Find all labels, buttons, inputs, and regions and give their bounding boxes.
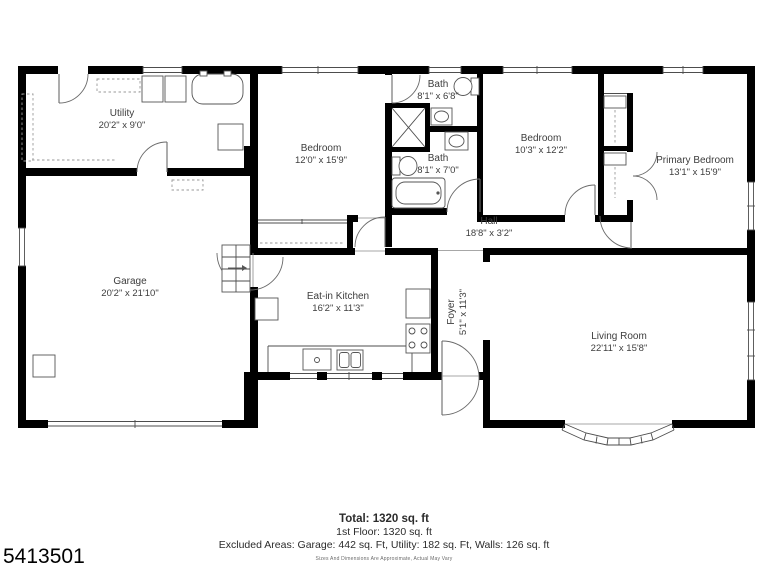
floorplan-drawing <box>0 0 768 576</box>
toilet-top <box>454 78 479 96</box>
dryer <box>165 76 186 102</box>
primary-closet-doors <box>633 152 657 200</box>
freezer <box>218 124 243 150</box>
refrigerator <box>406 289 430 318</box>
front-door <box>442 341 479 415</box>
bow-window <box>562 424 674 445</box>
kitchen-fixtures <box>255 289 430 372</box>
closet-top <box>604 94 627 145</box>
kitchen-sink <box>337 350 363 370</box>
garage-window <box>18 228 26 266</box>
water-heater <box>33 355 55 377</box>
bath-top-door <box>392 75 420 103</box>
listing-photo-id: 5413501 <box>3 545 85 569</box>
laundry-tub <box>192 71 243 104</box>
vanity-bottom <box>445 132 468 150</box>
utility-garage-door <box>137 142 167 172</box>
garage-door <box>48 420 222 428</box>
bathtub <box>392 178 445 208</box>
bedroom2-door <box>565 185 595 215</box>
bedroom-window <box>282 66 358 74</box>
vanity-top <box>431 108 452 125</box>
floorplan-page: Utility20'2" x 9'0"Bedroom12'0" x 15'9"B… <box>0 0 768 576</box>
stove <box>406 324 430 353</box>
bedroom-closet <box>258 219 347 243</box>
total-area: Total: 1320 sq. ft <box>0 513 768 526</box>
living-side-window <box>747 302 755 380</box>
pantry <box>255 298 278 320</box>
excluded-areas: Excluded Areas: Garage: 442 sq. Ft, Util… <box>0 539 768 552</box>
first-floor-area: 1st Floor: 1320 sq. ft <box>0 526 768 539</box>
hall-kitchen-door <box>355 217 385 247</box>
closet-bottom <box>604 153 626 198</box>
bath-window <box>429 66 461 74</box>
primary-window <box>663 66 703 74</box>
kitchen-windows <box>290 372 403 380</box>
utility-window <box>143 66 182 74</box>
shower <box>392 108 425 147</box>
toilet-bottom <box>392 157 417 176</box>
bedroom2-window <box>503 66 572 74</box>
primary-side-window <box>747 182 755 230</box>
garage-fixtures <box>33 245 250 377</box>
dishwasher <box>303 349 331 370</box>
utility-entry-door <box>59 74 88 103</box>
bath-bottom-door <box>447 179 480 212</box>
plan-summary: Total: 1320 sq. ft 1st Floor: 1320 sq. f… <box>0 513 768 562</box>
disclaimer-text: Sizes And Dimensions Are Approximate, Ac… <box>0 556 768 562</box>
washer <box>142 76 163 102</box>
